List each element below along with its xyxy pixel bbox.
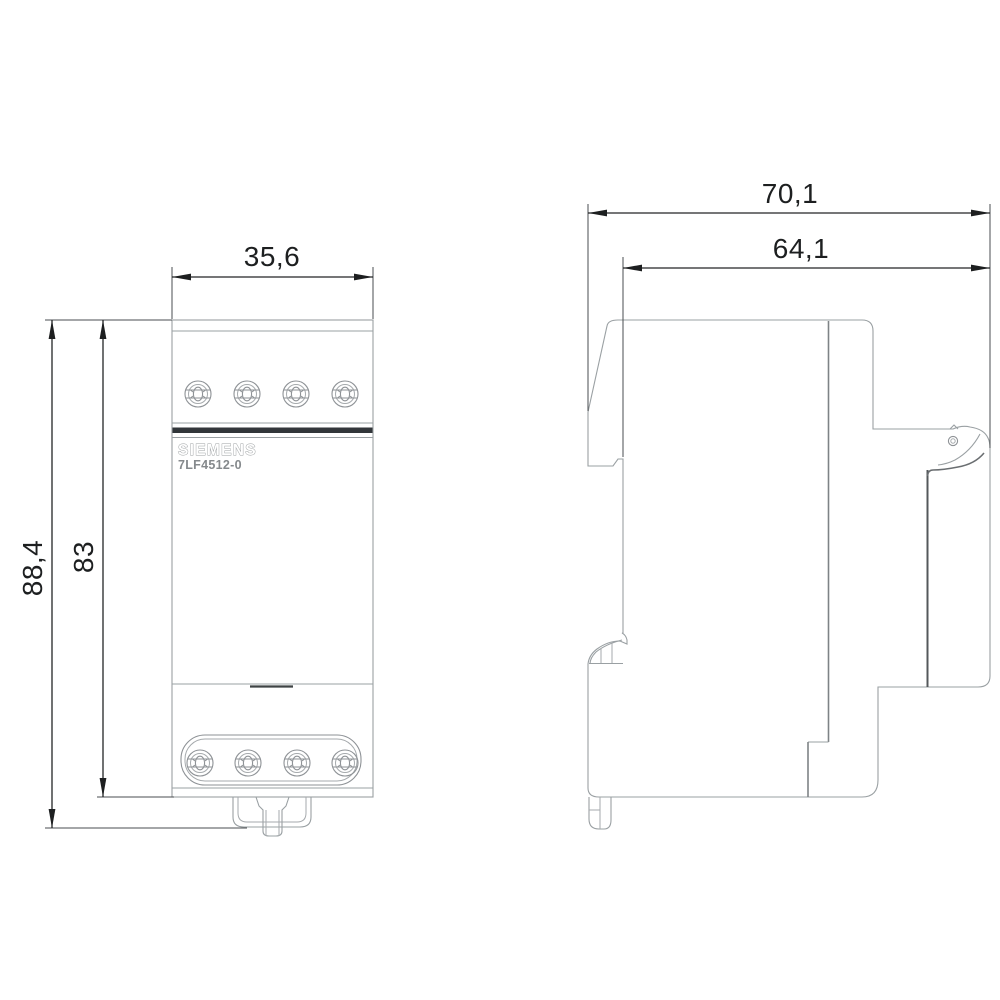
screw-icon: [235, 750, 261, 776]
dim-front-width-label: 35,6: [244, 241, 301, 272]
brand-label: SIEMENS: [178, 442, 257, 459]
side-body-outline: [588, 320, 990, 797]
front-view: SIEMENS 7LF4512-0: [172, 320, 373, 836]
screw-icon: [187, 750, 213, 776]
dim-total-depth: 70,1: [588, 178, 990, 448]
dim-total-height: 88,4: [17, 320, 247, 828]
dim-total-depth-label: 70,1: [762, 178, 819, 209]
technical-drawing: SIEMENS 7LF4512-0: [0, 0, 1000, 1000]
dim-body-depth-label: 64,1: [773, 233, 830, 264]
side-view: [588, 320, 990, 829]
dim-body-height: 83: [68, 320, 174, 797]
screw-icon: [332, 750, 358, 776]
rail-latch: [928, 425, 985, 476]
dim-total-height-label: 88,4: [17, 540, 48, 597]
din-clip-front: [233, 797, 311, 836]
terminal-block-inner: [185, 739, 357, 781]
screw-icon: [234, 381, 260, 407]
terminal-block-outer: [181, 735, 361, 785]
din-clip-side: [589, 797, 611, 829]
hinge-pin-icon: [948, 436, 957, 445]
screw-icon: [332, 381, 358, 407]
model-label: 7LF4512-0: [178, 458, 242, 472]
dim-body-height-label: 83: [68, 541, 99, 573]
screw-icon: [283, 381, 309, 407]
screw-icon: [284, 750, 310, 776]
front-dark-seam-band: [173, 428, 373, 434]
screw-icon: [185, 381, 211, 407]
dim-front-width: 35,6: [172, 241, 373, 319]
dim-body-depth: 64,1: [623, 233, 990, 457]
